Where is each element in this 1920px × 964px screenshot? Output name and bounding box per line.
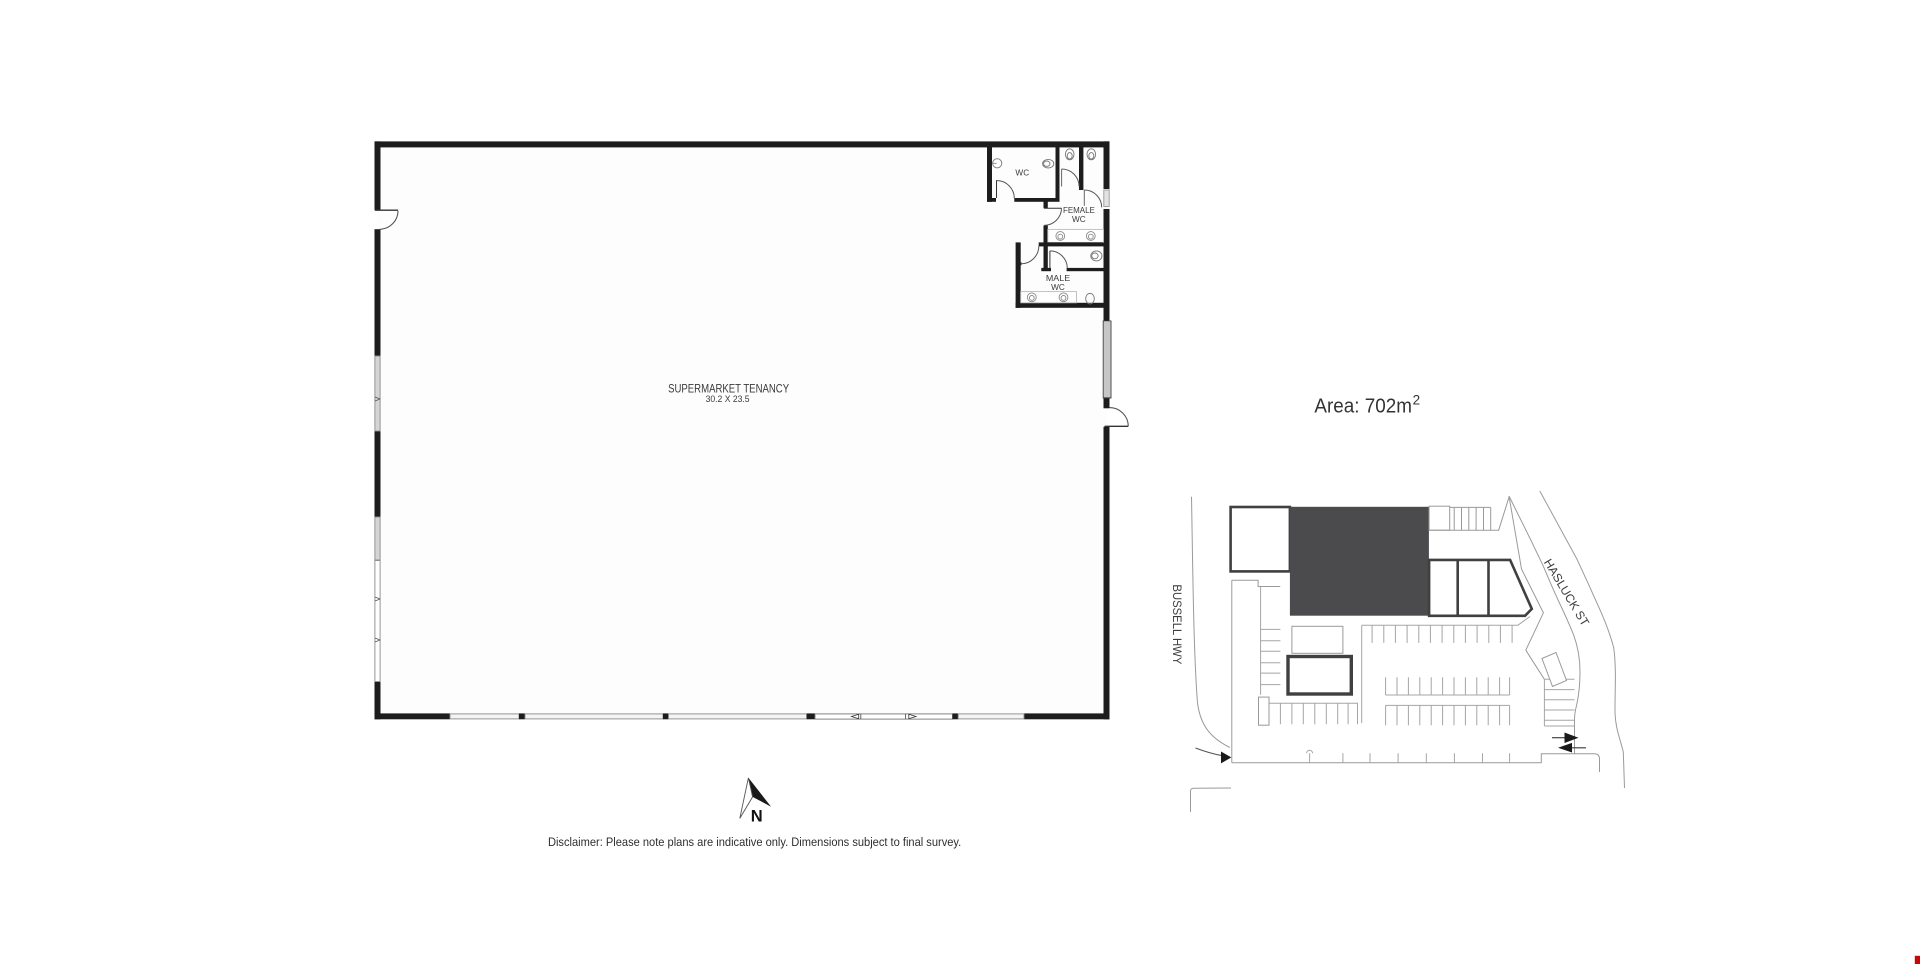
- svg-text:WC: WC: [1015, 169, 1029, 178]
- svg-text:30.2 X 23.5: 30.2 X 23.5: [706, 394, 750, 404]
- svg-text:2: 2: [1413, 393, 1421, 408]
- svg-text:Area: 702m: Area: 702m: [1314, 395, 1412, 417]
- svg-text:Disclaimer: Please note plans: Disclaimer: Please note plans are indica…: [548, 835, 961, 849]
- svg-text:MALE: MALE: [1046, 274, 1070, 283]
- svg-text:BUSSELL HWY: BUSSELL HWY: [1170, 584, 1184, 664]
- svg-text:WC: WC: [1072, 215, 1086, 224]
- svg-text:N: N: [751, 808, 763, 826]
- svg-text:WC: WC: [1051, 283, 1065, 292]
